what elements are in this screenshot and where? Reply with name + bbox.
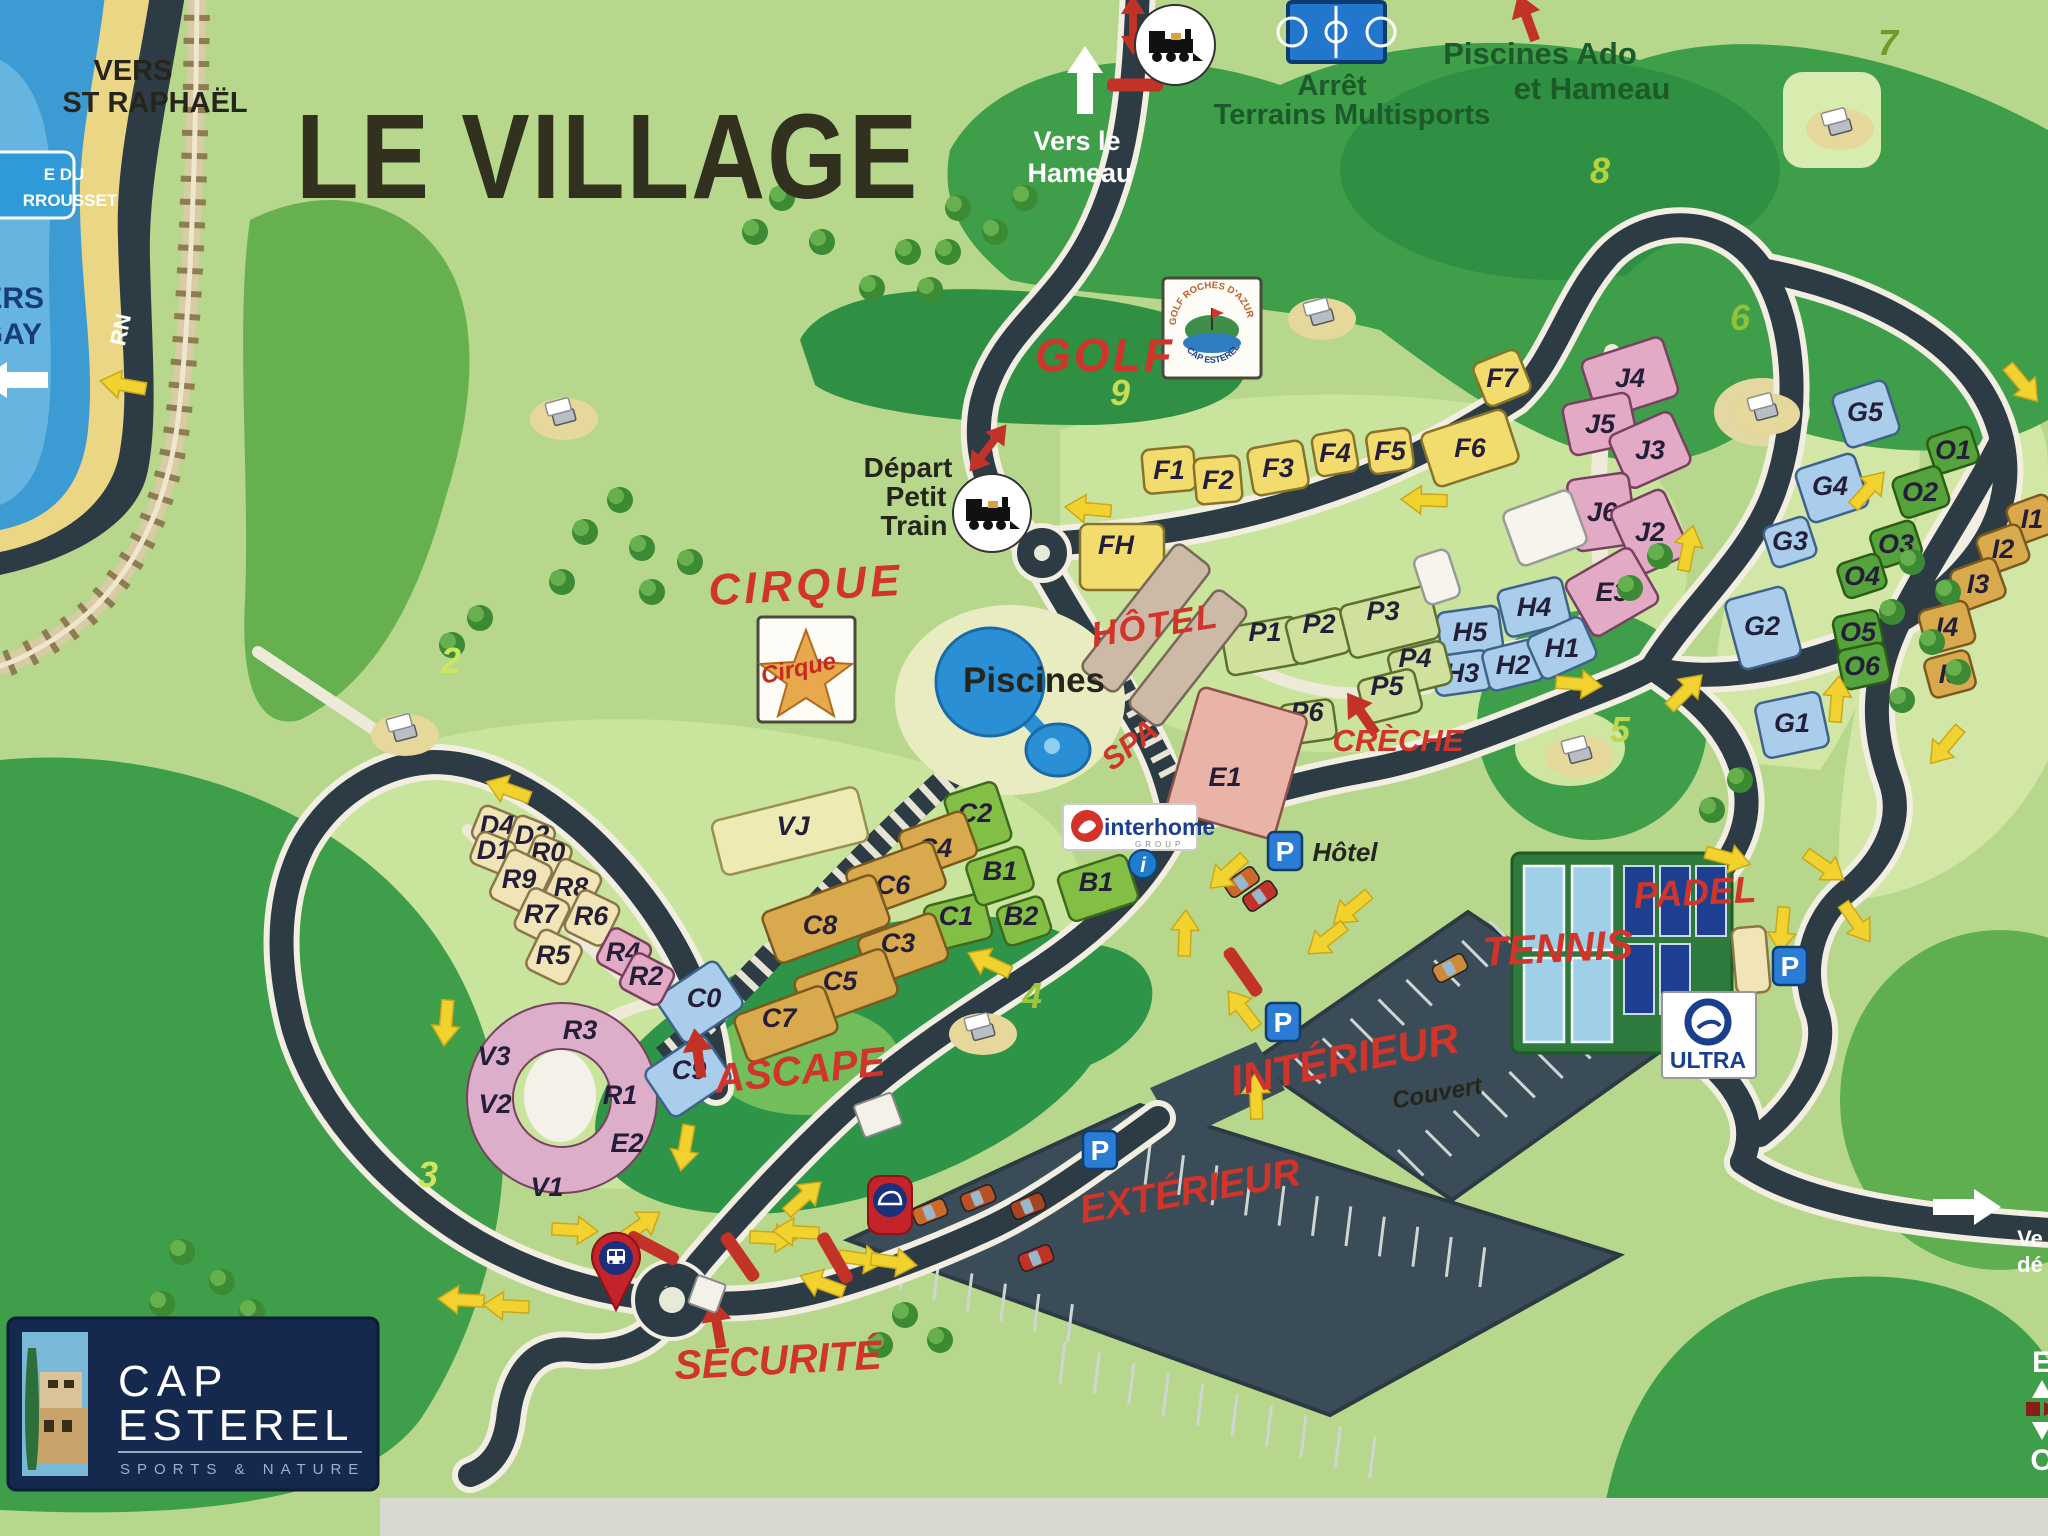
tree-icon [629, 535, 655, 561]
building-label-FH: FH [1098, 530, 1134, 560]
golf-hole-number-6: 6 [1730, 297, 1751, 338]
building-label-V1: V1 [530, 1172, 563, 1202]
building-label-P3: P3 [1366, 596, 1399, 626]
tree-icon [467, 605, 493, 631]
building-label-E2: E2 [610, 1128, 643, 1158]
edge-text-line2: dé [2017, 1252, 2043, 1277]
building-label-J5: J5 [1585, 409, 1616, 439]
roundabout-train [1018, 529, 1066, 577]
building-label-O1: O1 [1935, 435, 1971, 465]
building-label-H2: H2 [1496, 650, 1531, 680]
building-label-H5: H5 [1453, 617, 1488, 647]
building-label-F5: F5 [1374, 436, 1406, 466]
vers-agay-line2: GAY [0, 318, 42, 351]
building-label-F3: F3 [1262, 453, 1294, 483]
tree-icon [809, 229, 835, 255]
car-access-icon [868, 1176, 912, 1234]
esterel-text: ESTEREL [118, 1401, 354, 1450]
piscines-ado-line2: et Hameau [1514, 71, 1671, 106]
tree-icon [1919, 629, 1945, 655]
cap-esterel-logo: CAP ESTEREL SPORTS & NATURE [8, 1318, 378, 1490]
vers-le-hameau-line2: Hameau [1027, 158, 1132, 188]
vers-st-raphael-line1: VERS [94, 55, 173, 87]
tree-icon [169, 1239, 195, 1265]
building-label-R1: R1 [603, 1080, 638, 1110]
tree-icon [1945, 659, 1971, 685]
building-label-C8: C8 [803, 910, 838, 940]
building-label-O4: O4 [1844, 561, 1880, 591]
golf-club-logo: GOLF ROCHES D'AZUR CAP ESTEREL [1163, 278, 1261, 378]
tree-icon [1617, 575, 1643, 601]
cap-text: CAP [118, 1357, 229, 1406]
tree-icon [149, 1291, 175, 1317]
building-label-G3: G3 [1772, 526, 1808, 556]
tree-icon [677, 549, 703, 575]
building-label-R6: R6 [574, 901, 609, 931]
tree-icon [1889, 687, 1915, 713]
golf-hole-number-7: 7 [1878, 22, 1900, 63]
tree-icon [892, 1302, 918, 1328]
piscines-label: Piscines [963, 661, 1105, 700]
building-label-R7: R7 [524, 899, 560, 929]
vers-agay-line1: ERS [0, 282, 44, 315]
building-label-F4: F4 [1319, 438, 1351, 468]
building-label-P2: P2 [1302, 609, 1335, 639]
train-stop-top [1135, 5, 1215, 85]
tree-icon [1899, 549, 1925, 575]
building-label-G5: G5 [1847, 397, 1884, 427]
creche-label: CRÈCHE [1333, 723, 1465, 758]
tree-icon [945, 195, 971, 221]
tree-icon [607, 487, 633, 513]
building-label-O2: O2 [1902, 477, 1938, 507]
coast-sign-line1: E DU [44, 165, 85, 184]
building-label-O5: O5 [1840, 617, 1877, 647]
tree-icon [982, 219, 1008, 245]
tree-icon [1727, 767, 1753, 793]
building-label-J3: J3 [1635, 435, 1665, 465]
building-label-R2: R2 [629, 961, 664, 991]
building-label-O6: O6 [1844, 651, 1881, 681]
tree-icon [895, 239, 921, 265]
tennis-label: TENNIS [1482, 921, 1635, 975]
parking-icon-letter: P [1276, 836, 1295, 867]
building-label-B1: B1 [1079, 867, 1114, 897]
piscines-ado-line1: Piscines Ado [1443, 36, 1637, 71]
compass-red-2 [2044, 1402, 2048, 1416]
padel-label: PADEL [1633, 869, 1758, 916]
ultra-text: ULTRA [1670, 1047, 1746, 1073]
depart-train-icon [953, 474, 1031, 552]
parking-hotel-label: Hôtel [1313, 837, 1379, 867]
tree-icon [209, 1269, 235, 1295]
parking-icon: P [1083, 1131, 1117, 1169]
building-label-G2: G2 [1744, 611, 1780, 641]
building-label-I2: I2 [1992, 534, 2015, 564]
building-label-P1: P1 [1248, 617, 1281, 647]
building-label-R3: R3 [563, 1015, 598, 1045]
ultra-logo: ULTRA [1662, 992, 1756, 1078]
building-label-B1: B1 [983, 856, 1018, 886]
building-label-C1: C1 [939, 901, 974, 931]
cirque-logo: Cirque [758, 617, 855, 722]
edge-text-line1: Ve [2017, 1226, 2043, 1251]
building-label-C5: C5 [823, 966, 858, 996]
building-label-R5: R5 [536, 940, 571, 970]
building-label-H1: H1 [1545, 633, 1580, 663]
building-label-F1: F1 [1153, 455, 1185, 485]
building-label-C7: C7 [762, 1003, 798, 1033]
multisport-court-icon [1278, 2, 1395, 62]
parking-icon-letter: P [1781, 951, 1800, 982]
depart-line3: Train [881, 510, 948, 541]
building-label-I1: I1 [2021, 504, 2044, 534]
parking-icon-letter: P [1091, 1135, 1110, 1166]
interhome-text: interhome [1104, 814, 1215, 840]
building-label-J2: J2 [1635, 517, 1665, 547]
plaza-oval [524, 1050, 596, 1142]
building-label-F6: F6 [1454, 433, 1486, 463]
cirque-label: CIRQUE [707, 556, 904, 615]
golf-label: GOLF [1035, 329, 1175, 381]
building-label-H4: H4 [1517, 592, 1552, 622]
vers-st-raphael-line2: ST RAPHAËL [62, 86, 247, 119]
building-shape [1731, 926, 1771, 995]
info-icon: i [1129, 850, 1157, 878]
golf-hole-number-4: 4 [1021, 975, 1042, 1016]
golf-hole-number-8: 8 [1590, 150, 1610, 191]
pool-glare [1044, 738, 1060, 754]
vers-le-hameau-line1: Vers le [1033, 126, 1120, 156]
arret-line1: Arrêt [1297, 70, 1367, 102]
tree-icon [639, 579, 665, 605]
parking-icon: P [1268, 832, 1302, 870]
building-label-V2: V2 [478, 1089, 511, 1119]
compass-o: O [2030, 1444, 2048, 1477]
golf-hole-number-2: 2 [440, 640, 461, 681]
tree-icon [1647, 543, 1673, 569]
map-border-strip [380, 1498, 2048, 1536]
building-label-J4: J4 [1615, 363, 1645, 393]
compass-e: E [2032, 1346, 2048, 1379]
parking-icon: P [1773, 947, 1807, 985]
compass-red-1 [2026, 1402, 2040, 1416]
tree-icon [859, 275, 885, 301]
tree-icon [927, 1327, 953, 1353]
interhome-group-text: GROUP [1135, 840, 1184, 849]
page-title: LE VILLAGE [296, 88, 919, 224]
building-label-G1: G1 [1774, 708, 1810, 738]
tree-icon [1879, 599, 1905, 625]
building-label-P5: P5 [1370, 671, 1404, 701]
resort-map: RN E DU RROUSSET ERS GAY [0, 0, 2048, 1536]
depart-line2: Petit [886, 481, 947, 512]
tree-icon [1699, 797, 1725, 823]
tree-icon [917, 277, 943, 303]
building-label-I3: I3 [1967, 569, 1990, 599]
building-label-VJ: VJ [776, 811, 810, 841]
parking-icon-letter: P [1274, 1007, 1293, 1038]
golf-hole-number-3: 3 [418, 1154, 438, 1195]
tree-icon [549, 569, 575, 595]
golf-hole-number-5: 5 [1610, 709, 1631, 750]
building-label-P4: P4 [1398, 643, 1431, 673]
building-label-G4: G4 [1812, 471, 1848, 501]
building-label-F2: F2 [1202, 465, 1234, 495]
interhome-logo: interhome GROUP [1063, 804, 1215, 850]
tree-icon [1012, 185, 1038, 211]
map-canvas: RN E DU RROUSSET ERS GAY [0, 0, 2048, 1536]
building-label-F7: F7 [1486, 363, 1519, 393]
building-label-V3: V3 [477, 1041, 510, 1071]
depart-line1: Départ [864, 452, 953, 483]
building-label-E1: E1 [1208, 762, 1241, 792]
building-label-C0: C0 [687, 983, 722, 1013]
sports-nature-text: SPORTS & NATURE [120, 1461, 365, 1478]
coast-sign-line2: RROUSSET [23, 191, 118, 210]
tree-icon [1935, 579, 1961, 605]
parking-icon: P [1266, 1003, 1300, 1041]
tree-icon [572, 519, 598, 545]
arret-line2: Terrains Multisports [1214, 99, 1491, 131]
building-block [1731, 926, 1771, 995]
tree-icon [935, 239, 961, 265]
building-label-B2: B2 [1004, 901, 1039, 931]
